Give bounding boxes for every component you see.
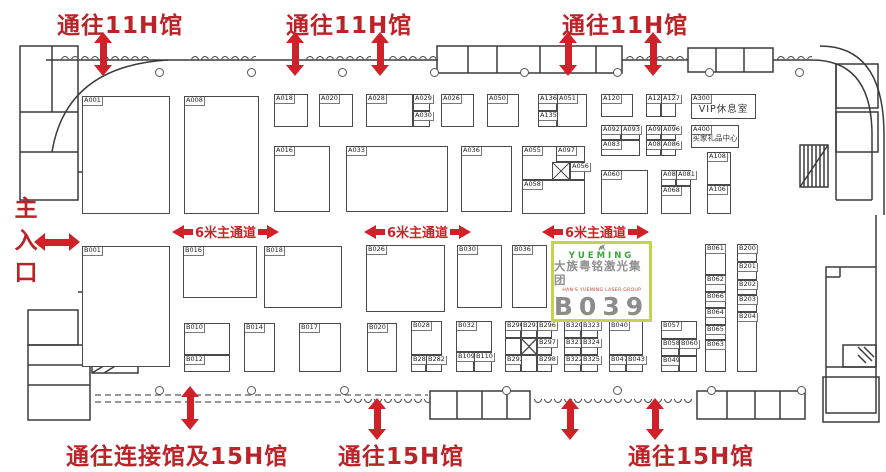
booth-B064: B064 (705, 308, 726, 325)
booth-B290: B290 (505, 321, 521, 338)
exit-label-bottom-1: 通往连接馆及15H馆 (66, 437, 288, 471)
booth-B018: B018 (264, 246, 342, 308)
booth-B028: B028 (411, 321, 442, 355)
pillar-circle (613, 68, 622, 77)
booth-B321: B321 (564, 338, 581, 355)
booth-label: A030 (414, 112, 434, 121)
booth-A016: A016 (274, 146, 330, 212)
booth-label: B036 (513, 246, 533, 255)
booth-B058: B058 (661, 339, 679, 356)
booth-A135: A135 (538, 111, 557, 127)
yueming-logo: ® (575, 244, 629, 251)
booth-label: B296 (538, 322, 558, 331)
door-arc-strip (190, 51, 256, 60)
booth-B298: B298 (537, 355, 552, 372)
booth-A036: A036 (461, 146, 512, 212)
pillar-circle (502, 386, 511, 395)
booth-cell (552, 162, 570, 180)
pillar-circle (340, 386, 349, 395)
booth-label: B032 (457, 322, 477, 331)
booth-label: B014 (245, 324, 265, 333)
booth-label: B065 (706, 326, 726, 335)
booth-B040: B040 (609, 321, 643, 355)
booth-cell (679, 356, 697, 372)
booth-B012: B012 (184, 355, 230, 372)
booth-A106: A106 (707, 185, 731, 214)
booth-label: A108 (708, 153, 728, 162)
booth-B281: B281 (411, 355, 426, 372)
booth-label: A028 (367, 95, 387, 104)
booth-B204: B204 (737, 312, 757, 372)
booth-cell (505, 338, 521, 355)
aisle-text: 6米主通道 (193, 222, 258, 241)
booth-A097: A097 (556, 146, 585, 162)
booth-label: B028 (412, 322, 432, 331)
booth-B063: B063 (705, 340, 726, 372)
booth-B297: B297 (537, 338, 552, 355)
pillar-circle (338, 68, 347, 77)
booth-A122: A122 (646, 94, 661, 117)
booth-label: B204 (738, 313, 758, 322)
booth-label: A056 (571, 163, 591, 172)
pillar-circle (520, 68, 529, 77)
booth-B016: B016 (183, 246, 257, 298)
booth-B032: B032 (456, 321, 492, 352)
booth-label: A135 (539, 112, 559, 121)
booth-B201: B201 (737, 262, 757, 280)
right-arrow-icon (459, 225, 471, 239)
booth-A081: A081 (676, 170, 691, 186)
arrow-shaft (554, 229, 563, 235)
booth-B057: B057 (661, 321, 697, 339)
booth-B061: B061 (705, 244, 726, 275)
booth-A026: A026 (441, 94, 474, 127)
arrow-shaft (258, 229, 267, 235)
booth-label: A093 (622, 126, 642, 135)
pillar-circle (247, 68, 256, 77)
booth-label: B017 (300, 324, 320, 333)
booth-A028: A028 (366, 94, 413, 127)
pillar-circle (795, 68, 804, 77)
booth-B324: B324 (581, 338, 598, 355)
booth-B026: B026 (366, 245, 445, 312)
booth-B062: B062 (705, 275, 726, 292)
booth-A020: A020 (319, 94, 353, 127)
booth-label: B203 (738, 296, 758, 305)
booth-A060: A060 (601, 170, 648, 214)
booth-A018: A018 (274, 94, 308, 127)
brand-sub: HAN'S YUEMING LASER GROUP (562, 288, 641, 293)
booth-B202: B202 (737, 280, 757, 295)
pillar-circle (797, 386, 806, 395)
exit-arrow-icon (94, 32, 112, 76)
booth-label: A033 (347, 147, 367, 156)
booth-A093: A093 (621, 125, 640, 140)
booth-B109: B109 (456, 352, 474, 372)
booth-A127: A127 (661, 94, 676, 117)
booth-A058: A058 (522, 180, 585, 214)
booth-cell (521, 355, 537, 372)
booth-label: A096 (662, 126, 682, 135)
booth-A056: A056 (570, 162, 585, 180)
booth-A086: A086 (661, 140, 676, 156)
booth-label: A029 (414, 95, 434, 104)
pillar-circle (707, 386, 716, 395)
booth-label: A058 (523, 181, 543, 190)
booth-label: A051 (558, 95, 578, 104)
booth-A083: A083 (601, 140, 640, 156)
exit-arrow-icon (644, 32, 662, 76)
booth-B325: B325 (581, 355, 598, 372)
registered-mark: ® (605, 244, 607, 247)
booth-A085: A085 (646, 140, 661, 156)
booth-B047: B047 (609, 355, 626, 372)
right-arrow-icon (637, 225, 649, 239)
booth-label: B043 (627, 356, 647, 365)
exit-arrow-icon (181, 386, 199, 430)
exit-label-top-1: 通往11H馆 (57, 6, 183, 40)
booth-label: B063 (706, 341, 726, 350)
booth-A080: A080 (661, 170, 676, 186)
booth-B282: B282 (426, 355, 442, 372)
exit-arrow-icon (561, 398, 579, 440)
arrow-shaft (628, 229, 637, 235)
booth-B296: B296 (537, 321, 552, 338)
booth-label: A036 (462, 147, 482, 156)
booth-label: B057 (662, 322, 682, 331)
booth-label: A136 (539, 95, 559, 104)
booth-cell (521, 338, 537, 355)
booth-label: B064 (706, 309, 726, 318)
booth-label: B040 (610, 322, 630, 331)
booth-A051: A051 (557, 94, 587, 127)
booth-A008: A008 (184, 96, 259, 214)
booth-B320: B320 (564, 321, 581, 338)
booth-label: B030 (458, 246, 478, 255)
booth-label: B110 (475, 353, 495, 362)
booth-label: B061 (706, 245, 726, 254)
left-arrow-icon (542, 225, 554, 239)
booth-A033: A033 (346, 146, 448, 212)
booth-label: B018 (265, 247, 285, 256)
door-arc-strip (533, 399, 692, 408)
pillar-circle (155, 68, 164, 77)
aisle-label-3: 6米主通道 (542, 222, 649, 241)
booth-label: B010 (185, 324, 205, 333)
booth-B049: B049 (661, 356, 679, 372)
booth-label: A083 (602, 141, 622, 150)
right-arrow-icon (267, 225, 279, 239)
door-arc-strip (776, 51, 812, 60)
booth-B030: B030 (457, 245, 502, 308)
booth-label: B060 (680, 340, 700, 349)
booth-B036: B036 (512, 245, 547, 308)
booth-label: B201 (738, 263, 758, 272)
booth-B014: B014 (244, 323, 275, 372)
left-arrow-icon (172, 225, 184, 239)
arrow-shaft (376, 229, 385, 235)
room-gift-center: A400 买家礼品中心 (691, 125, 739, 148)
aisle-label-2: 6米主通道 (364, 222, 471, 241)
booth-B322: B322 (564, 355, 581, 372)
arrow-shaft (184, 229, 193, 235)
room-name: VIP休息室 (692, 101, 755, 115)
booth-label: B020 (368, 324, 388, 333)
booth-label: B297 (538, 339, 558, 348)
booth-A030: A030 (413, 111, 430, 127)
booth-A120: A120 (601, 94, 633, 117)
booth-A029: A029 (413, 94, 430, 111)
left-arrow-icon (364, 225, 376, 239)
booth-label: B298 (538, 356, 558, 365)
booth-label: B012 (185, 356, 205, 365)
booth-label: A050 (488, 95, 508, 104)
booth-label: B016 (184, 247, 204, 256)
booth-label: A055 (523, 147, 543, 156)
booth-A068: A068 (661, 186, 691, 214)
booth-B293: B293 (521, 321, 537, 338)
booth-B043: B043 (626, 355, 643, 372)
booth-label: A127 (662, 95, 682, 104)
exhibition-floorplan: A001A008A018A020A028A029A030A026A050A136… (0, 0, 886, 472)
booth-A096: A096 (661, 125, 676, 140)
booth-B065: B065 (705, 325, 726, 340)
exit-arrow-icon (559, 32, 577, 76)
booth-label: A068 (662, 187, 682, 196)
booth-label: A020 (320, 95, 340, 104)
booth-B060: B060 (679, 339, 697, 356)
exit-arrow-icon (371, 32, 389, 76)
booth-label: A097 (557, 147, 577, 156)
booth-label: A092 (602, 126, 622, 135)
arrow-shaft (450, 229, 459, 235)
exit-label-top-2: 通往11H馆 (286, 6, 412, 40)
booth-label: A001 (83, 97, 103, 106)
booth-label: A008 (185, 97, 205, 106)
booth-B110: B110 (474, 352, 492, 372)
booth-A050: A050 (487, 94, 519, 127)
booth-label: A120 (602, 95, 622, 104)
booth-label: B062 (706, 276, 726, 285)
door-arc-strip (305, 51, 371, 60)
booth-A136: A136 (538, 94, 557, 111)
booth-label: B066 (706, 293, 726, 302)
booth-label: B282 (427, 356, 447, 365)
pillar-circle (155, 386, 164, 395)
brand-cn: 大族粤铭激光集团 (554, 260, 649, 288)
booth-label: A086 (662, 141, 682, 150)
booth-A095: A095 (646, 125, 661, 140)
booth-B017: B017 (299, 323, 341, 372)
booth-number: B039 (554, 294, 649, 319)
booth-label: B001 (83, 247, 103, 256)
exit-arrow-icon (368, 398, 386, 440)
booth-A092: A092 (601, 125, 621, 140)
booth-B200: B200 (737, 244, 757, 262)
pillar-circle (613, 386, 622, 395)
pillar-circle (247, 386, 256, 395)
booth-label: B202 (738, 281, 758, 290)
exit-label-top-3: 通往11H馆 (562, 6, 688, 40)
exit-arrow-icon (646, 398, 664, 440)
booth-label: B324 (582, 339, 602, 348)
booth-label: B325 (582, 356, 602, 365)
exit-arrow-icon (286, 32, 304, 76)
booth-B020: B020 (367, 323, 397, 372)
booth-label: A016 (275, 147, 295, 156)
booth-B203: B203 (737, 295, 757, 312)
door-arc-strip (388, 51, 436, 60)
booth-label: A060 (602, 171, 622, 180)
booth-B292: B292 (505, 355, 521, 372)
room-name: 买家礼品中心 (692, 132, 738, 143)
booth-label: A106 (708, 186, 728, 195)
booth-A001: A001 (82, 96, 170, 214)
exit-label-bottom-2: 通往15H馆 (338, 437, 464, 471)
booth-label: A081 (677, 171, 697, 180)
booth-B323: B323 (581, 321, 598, 338)
entrance-arrow-icon (34, 233, 80, 251)
pillar-circle (430, 68, 439, 77)
exit-label-bottom-3: 通往15H馆 (628, 437, 754, 471)
aisle-text: 6米主通道 (385, 222, 450, 241)
pillar-circle (705, 68, 714, 77)
aisle-label-1: 6米主通道 (172, 222, 279, 241)
highlight-booth-b039[interactable]: ® YUEMING 大族粤铭激光集团 HAN'S YUEMING LASER G… (551, 241, 652, 322)
booth-label: A026 (442, 95, 462, 104)
room-vip-lounge: A300 VIP休息室 (691, 94, 756, 119)
booth-label: B200 (738, 245, 758, 254)
aisle-text: 6米主通道 (563, 222, 628, 241)
booth-B001: B001 (82, 246, 170, 367)
booth-label: A018 (275, 95, 295, 104)
booth-A108: A108 (707, 152, 731, 185)
door-arc-strip (343, 399, 430, 408)
booth-B066: B066 (705, 292, 726, 308)
booth-label: B026 (367, 246, 387, 255)
booth-label: B323 (582, 322, 602, 331)
booth-B010: B010 (184, 323, 230, 355)
